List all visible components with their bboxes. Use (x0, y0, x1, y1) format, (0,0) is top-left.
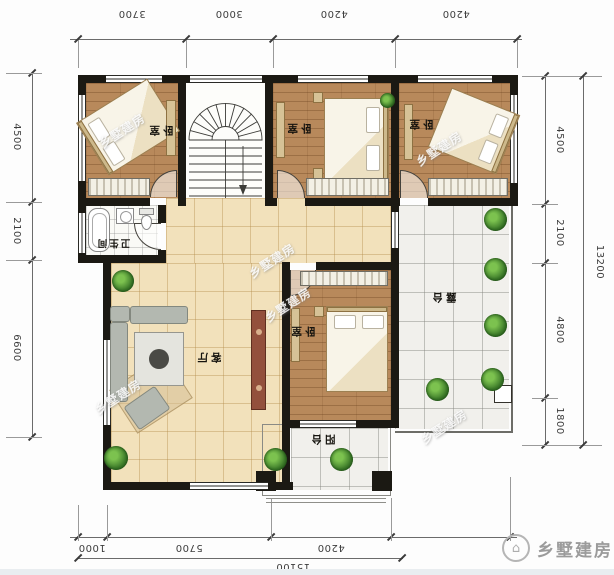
bedroom3-side-window (510, 95, 518, 183)
bedroom3-wardrobe (428, 178, 508, 196)
wall (178, 75, 186, 206)
house-logo-icon: ⌂ (502, 534, 530, 562)
balcony-column (372, 471, 392, 491)
dim-label-right-total: 13200 (592, 240, 606, 284)
bedroom2-wardrobe (306, 178, 389, 196)
wall (391, 262, 399, 428)
dim-extension-line (522, 445, 602, 446)
plant (264, 448, 287, 471)
wall (356, 420, 399, 428)
table-decor (149, 349, 169, 369)
dim-label-top: 4200 (304, 6, 364, 20)
dim-label-top: 4200 (426, 6, 486, 20)
living-room-label: 客厅 (186, 350, 230, 364)
bedroom4-window (300, 420, 356, 428)
toilet-tank (139, 208, 154, 215)
wall (103, 482, 190, 490)
stairwell-window (190, 75, 262, 83)
wall (428, 198, 510, 206)
balcony-label: 阳台 (300, 432, 344, 446)
dim-tick (398, 554, 406, 562)
dim-extension-line (271, 498, 272, 541)
dim-label-top: 3700 (102, 6, 162, 20)
dim-label-right: 2100 (552, 211, 566, 255)
sink-basin (120, 211, 132, 223)
bed-pillow (366, 107, 380, 133)
wall (305, 198, 391, 206)
dim-extension-line (78, 505, 79, 541)
bed-pillow (362, 315, 384, 329)
bedroom3-dresser (404, 104, 413, 160)
terrace-label: 露台 (421, 290, 465, 304)
dim-extension-line (6, 202, 42, 203)
stair-direction-arrow (239, 185, 247, 195)
plant (481, 368, 504, 391)
dim-line-right-total (583, 76, 584, 445)
plant (484, 314, 507, 337)
dim-line-top (70, 39, 522, 40)
dim-label-left: 6600 (9, 326, 23, 370)
dim-extension-line (186, 40, 187, 68)
plant (426, 378, 449, 401)
dim-label-bottom: 1000 (62, 540, 122, 554)
bottom-edge-strip (0, 569, 614, 575)
bathroom-label: 卫生间 (80, 235, 146, 249)
dim-label-right: 4800 (552, 308, 566, 352)
bedroom1-wardrobe (88, 178, 150, 196)
nightstand (313, 92, 323, 103)
dim-extension-line (532, 263, 558, 264)
wall (282, 420, 300, 428)
plant (104, 446, 128, 470)
terrace-door (391, 212, 399, 248)
wall (86, 198, 150, 206)
wall (391, 198, 400, 206)
dim-line-left (32, 73, 33, 437)
dim-extension-line (6, 437, 42, 438)
plant (484, 258, 507, 281)
dim-label-bottom: 5700 (159, 540, 219, 554)
living-room-window (190, 482, 268, 490)
bedroom1-window (106, 75, 162, 83)
bedroom3-window (418, 75, 492, 83)
wall (265, 198, 277, 206)
wall (391, 248, 399, 263)
wall (158, 205, 166, 223)
bedroom3-label: 卧室 (398, 117, 442, 131)
bedroom4-bed (326, 306, 388, 392)
dim-extension-line (6, 260, 42, 261)
bedroom4-label: 卧室 (280, 324, 324, 338)
dim-extension-line (107, 505, 108, 541)
wall (78, 255, 166, 263)
dim-label-right: 4500 (552, 118, 566, 162)
bed-pillow (334, 315, 356, 329)
dim-label-left: 4500 (9, 115, 23, 159)
dim-extension-line (78, 40, 79, 68)
dim-label-top: 3000 (199, 6, 259, 20)
plant (484, 208, 507, 231)
cabinet-knob (256, 385, 262, 391)
floor-plan-canvas: 3700 3000 4200 4200 4500 2100 6600 4500 … (0, 0, 614, 575)
bedroom4-wardrobe (300, 271, 388, 286)
tv-cabinet (251, 310, 266, 410)
dim-label-left: 2100 (9, 209, 23, 253)
brand-name: 乡墅建房 (537, 536, 613, 561)
dim-label-bottom: 4200 (301, 540, 361, 554)
plant (112, 270, 134, 292)
brand-logo: ⌂ 乡墅建房 (502, 534, 613, 562)
dim-extension-line (510, 477, 511, 541)
bedroom2-bed (324, 98, 389, 180)
coffee-table (134, 332, 184, 386)
nightstand (314, 306, 324, 317)
plant (330, 448, 353, 471)
bed-pillow (366, 145, 380, 171)
dim-extension-line (6, 73, 42, 74)
dim-extension-line (522, 76, 602, 77)
dim-extension-line (391, 498, 392, 541)
cabinet-knob (256, 329, 262, 335)
sofa-seat (130, 306, 188, 324)
sink (116, 208, 134, 224)
wall (268, 482, 293, 490)
bedroom2-window (298, 75, 368, 83)
wall (265, 75, 273, 206)
wall (316, 262, 399, 270)
dim-extension-line (273, 40, 274, 68)
bed-headboard (383, 99, 388, 179)
balcony-step-line (266, 498, 386, 503)
wall (158, 250, 166, 263)
staircase (186, 83, 265, 198)
dim-extension-line (532, 204, 558, 205)
dim-line-bottom-total (77, 558, 403, 559)
dim-extension-line (517, 40, 518, 68)
bedroom2-label: 卧室 (276, 121, 320, 135)
dim-extension-line (395, 40, 396, 68)
dim-label-right: 1800 (552, 399, 566, 443)
plant (380, 93, 395, 108)
dim-line-bottom (70, 537, 517, 538)
bed-headboard (327, 307, 387, 312)
sofa-corner (110, 306, 130, 322)
